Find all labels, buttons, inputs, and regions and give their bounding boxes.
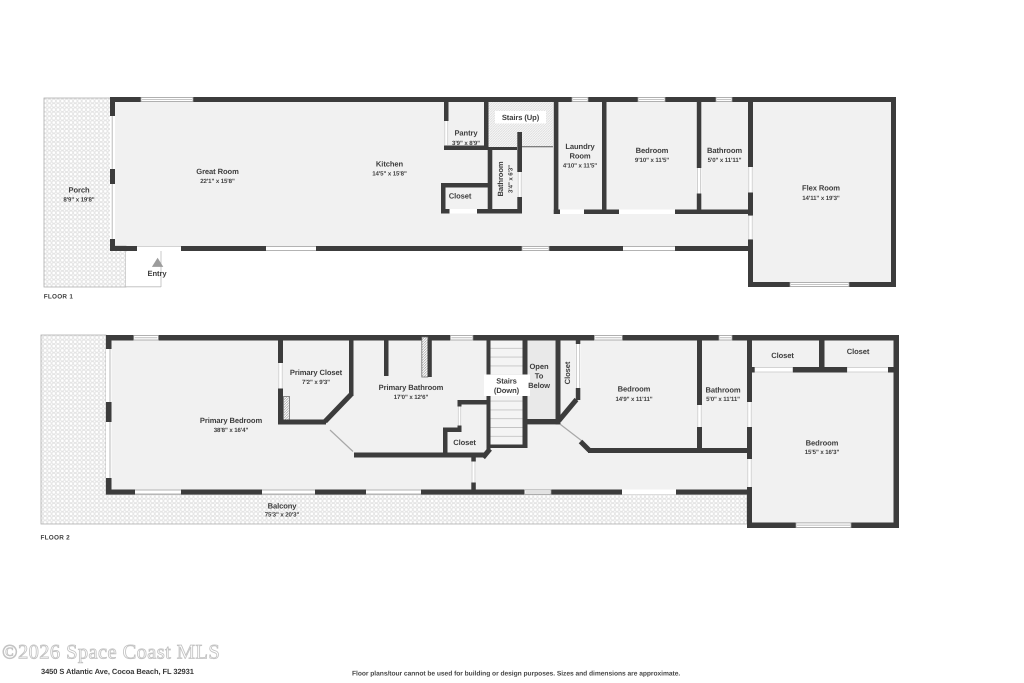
svg-text:14'9" x 11'11": 14'9" x 11'11" [615,396,652,403]
svg-text:14'5" x 15'8": 14'5" x 15'8" [372,171,407,178]
svg-text:3'9" x 8'9": 3'9" x 8'9" [452,140,480,147]
svg-text:17'0" x 12'6": 17'0" x 12'6" [394,394,429,401]
svg-text:Entry: Entry [148,269,168,278]
svg-text:FLOOR 1: FLOOR 1 [44,294,74,301]
svg-text:Great Room: Great Room [196,167,239,176]
svg-text:Bedroom: Bedroom [636,146,669,155]
svg-text:Closet: Closet [563,361,572,384]
svg-text:Bathroom: Bathroom [705,386,740,395]
svg-text:Primary Bedroom: Primary Bedroom [200,416,263,425]
svg-text:8'9" x 19'8": 8'9" x 19'8" [63,196,94,203]
svg-text:Below: Below [528,381,550,390]
svg-text:Stairs: Stairs [496,377,517,386]
svg-text:75'3" x 20'3": 75'3" x 20'3" [265,512,300,519]
svg-text:3450 S Atlantic Ave, Cocoa Bea: 3450 S Atlantic Ave, Cocoa Beach, FL 329… [41,667,194,676]
svg-text:14'11" x 19'3": 14'11" x 19'3" [802,195,840,202]
svg-text:Closet: Closet [847,347,870,356]
svg-text:Porch: Porch [68,186,89,195]
svg-text:22'1" x 15'8": 22'1" x 15'8" [200,178,235,185]
svg-text:Bathroom: Bathroom [496,161,505,196]
svg-text:Pantry: Pantry [454,129,478,138]
svg-text:3'4" x 6'3": 3'4" x 6'3" [508,165,515,193]
svg-text:15'5" x 16'3": 15'5" x 16'3" [805,449,840,456]
svg-text:Floor plans/tour cannot be use: Floor plans/tour cannot be used for buil… [352,670,680,677]
svg-text:Balcony: Balcony [268,502,298,511]
svg-text:Laundry: Laundry [565,142,595,151]
svg-text:To: To [535,372,544,381]
svg-text:Kitchen: Kitchen [376,160,404,169]
svg-text:5'0" x 11'11": 5'0" x 11'11" [706,396,740,403]
svg-text:Flex Room: Flex Room [802,184,840,193]
svg-text:Closet: Closet [771,351,794,360]
svg-text:FLOOR 2: FLOOR 2 [41,535,71,542]
svg-text:Closet: Closet [449,192,472,201]
svg-text:7'2" x 9'3": 7'2" x 9'3" [302,379,330,386]
svg-text:Closet: Closet [453,438,476,447]
svg-text:Primary Bathroom: Primary Bathroom [379,383,444,392]
svg-text:38'8" x 16'4": 38'8" x 16'4" [214,427,249,434]
svg-text:9'10" x 11'5": 9'10" x 11'5" [635,157,669,164]
svg-text:Bedroom: Bedroom [618,385,651,394]
svg-text:Bedroom: Bedroom [806,439,839,448]
svg-text:5'0" x 11'11": 5'0" x 11'11" [708,157,742,164]
svg-text:4'10" x 11'5": 4'10" x 11'5" [563,162,597,169]
svg-text:Stairs (Up): Stairs (Up) [502,113,540,122]
svg-text:Bathroom: Bathroom [707,146,742,155]
svg-text:(Down): (Down) [494,386,520,395]
svg-text:Room: Room [569,152,590,161]
svg-text:Primary Closet: Primary Closet [290,368,343,377]
svg-text:©2026 Space Coast MLS: ©2026 Space Coast MLS [2,642,220,664]
svg-text:Open: Open [529,362,548,371]
